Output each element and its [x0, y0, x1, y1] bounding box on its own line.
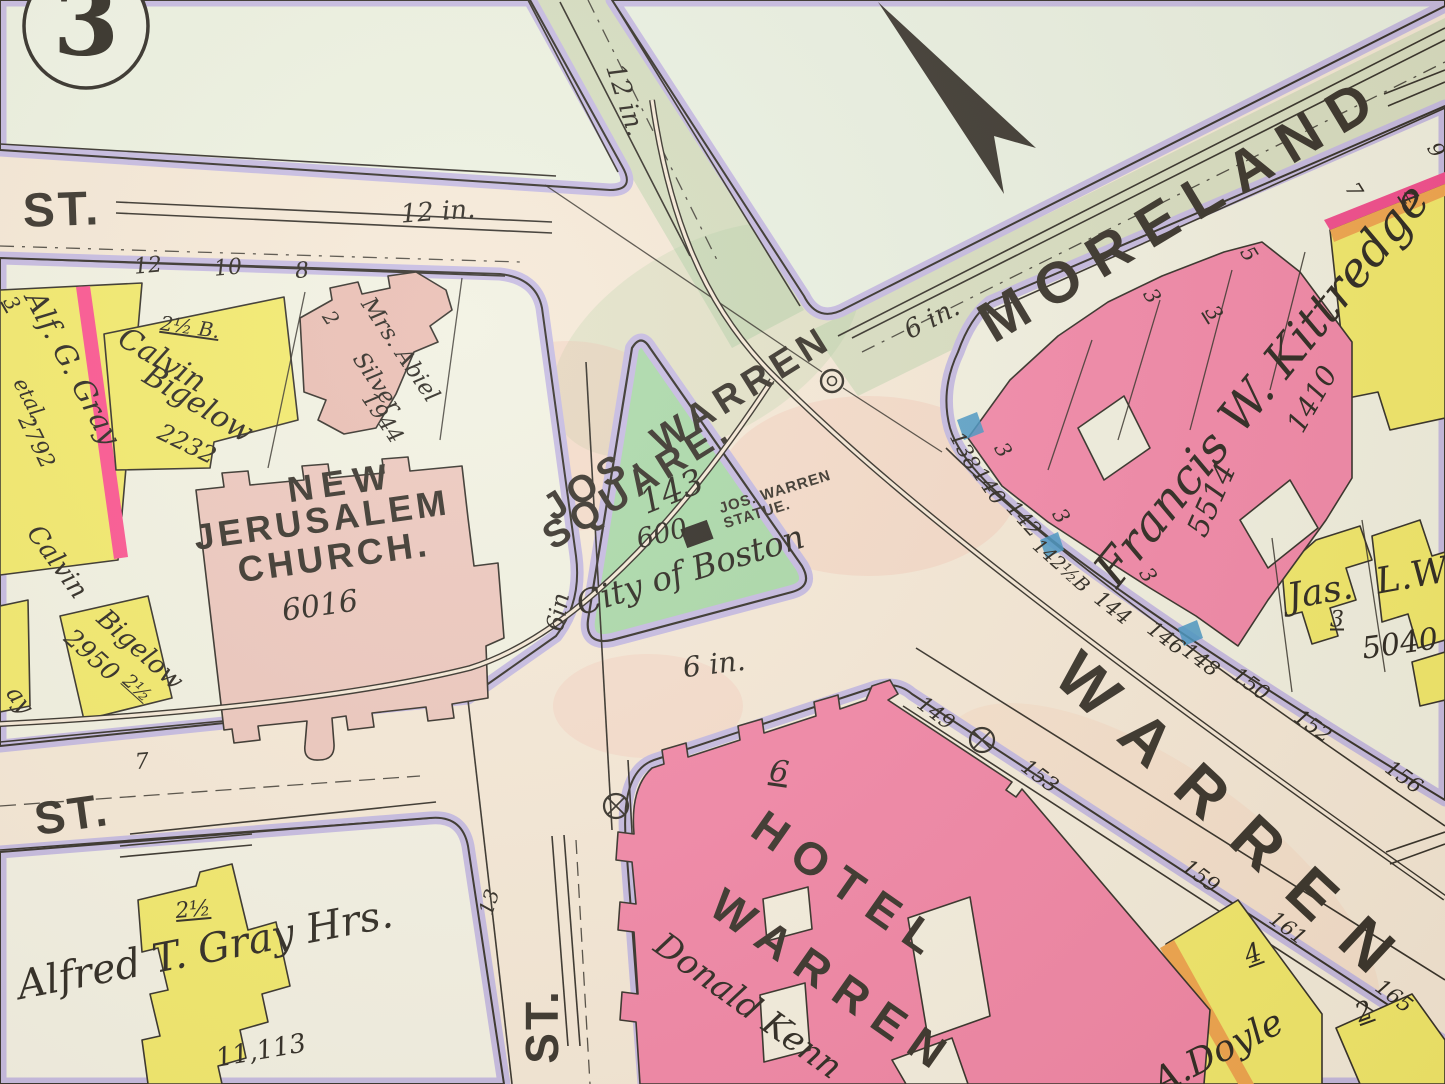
alfred-gray-size: 2½	[174, 896, 211, 924]
house-number-10: 10	[213, 254, 243, 281]
street-name-st-bottom: ST.	[515, 988, 569, 1063]
atlas-map-canvas: 3 ST. ST. ST. MORELAND WARREN JOS. WARRE…	[0, 0, 1445, 1084]
house-number-12: 12	[133, 252, 163, 279]
plate-number: 3	[53, 0, 119, 78]
jas-lot-number: 3	[1330, 608, 1344, 633]
pipe-label-12in-top: 12 in.	[400, 194, 477, 229]
house-number-7: 7	[134, 749, 150, 775]
street-name-st-top: ST.	[22, 181, 102, 239]
street-name-st-left: ST.	[31, 782, 113, 846]
manhole-circle-icon	[821, 370, 843, 392]
house-number-8: 8	[294, 258, 310, 284]
